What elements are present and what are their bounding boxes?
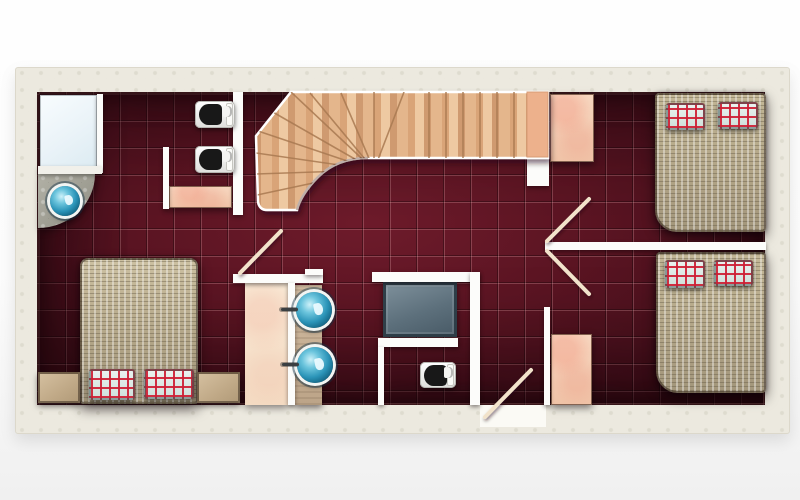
sink-icon-2: [297, 347, 333, 383]
shower-ledge: [38, 166, 102, 174]
wall-bath-left: [378, 347, 384, 405]
toilet-bowl: [223, 151, 232, 162]
wall-bottom-right-vertical: [544, 307, 550, 405]
toilet-seat: [199, 104, 222, 125]
wall-bath-right: [470, 272, 480, 405]
shower-cabin: [40, 95, 97, 167]
floor-plan-page: [0, 0, 800, 500]
wall-wc-left: [163, 147, 169, 209]
wall-bath-top: [372, 272, 480, 282]
nightstand-right: [197, 372, 240, 403]
wall-shower-right: [97, 94, 103, 173]
pillow-icon: [89, 369, 135, 400]
wall-right-horizontal: [545, 242, 766, 250]
closet-hallway: [245, 283, 288, 405]
wardrobe-top-right: [550, 94, 594, 162]
wall-hall-notch: [305, 269, 323, 275]
pillow-icon: [714, 260, 753, 286]
wall-stair-landing: [527, 156, 549, 186]
nightstand-left: [38, 372, 80, 403]
pillow-icon: [666, 103, 705, 130]
shower-tray: [383, 282, 457, 337]
wardrobe-bottom-right: [551, 334, 592, 405]
toilet-icon-2: [195, 146, 235, 173]
toilet-bowl: [444, 367, 453, 378]
corner-basin-icon: [50, 186, 80, 216]
wall-hall-horizontal: [233, 274, 323, 283]
bed-bottom-right: [656, 252, 766, 393]
sink-icon-1: [296, 292, 332, 328]
toilet-bowl: [223, 106, 232, 117]
toilet-seat: [199, 149, 222, 170]
wall-closet-right: [288, 283, 295, 405]
pillow-icon: [144, 369, 194, 399]
wc-vanity-counter: [169, 186, 232, 208]
pillow-icon: [718, 102, 758, 129]
entry-threshold: [480, 405, 546, 427]
pillow-icon: [665, 260, 705, 288]
toilet-icon-3: [420, 362, 456, 388]
wall-bath-mid: [378, 338, 458, 347]
bed-top-right: [655, 93, 766, 232]
toilet-icon-1: [195, 101, 235, 128]
bed-bottom-left: [80, 258, 198, 404]
